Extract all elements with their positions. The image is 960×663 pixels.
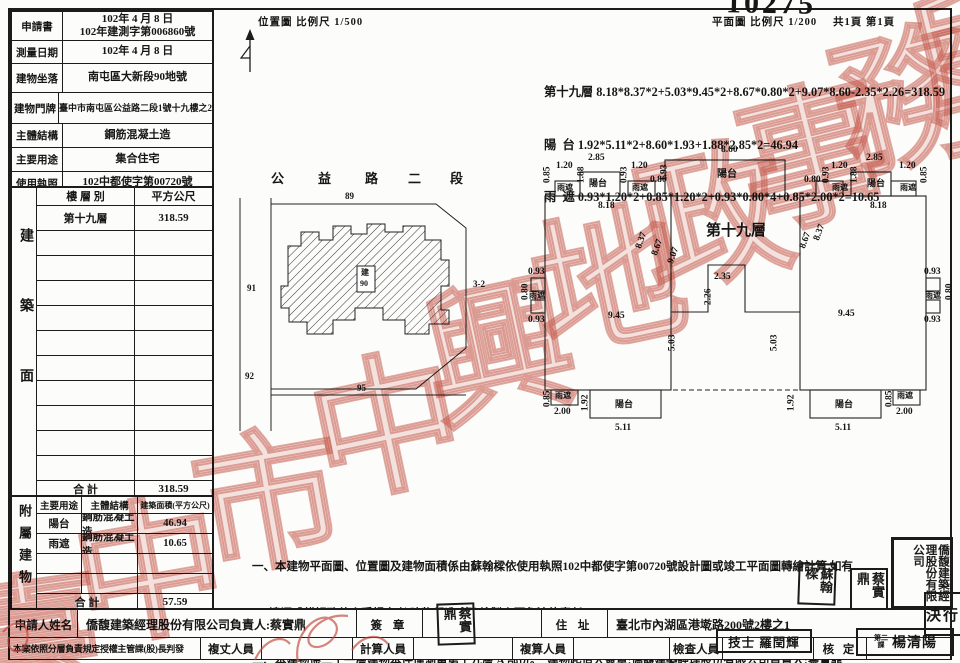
north-arrow-icon (236, 26, 266, 74)
annex-table-side-label: 附屬建物 (12, 497, 37, 610)
dim-label: 2.85 (866, 154, 883, 164)
dim-label: 0.93 (621, 166, 631, 183)
dim-label: 2.00 (896, 408, 913, 418)
dim-label: 第十九層 (706, 224, 766, 239)
table-cell (135, 231, 212, 255)
dim-label: 9.45 (838, 310, 855, 320)
dim-label: 0.85 (544, 390, 554, 407)
dim-label: 8.18 (598, 202, 615, 212)
recalc-staff-area (574, 638, 670, 659)
annex-table-header: 主要用途 主體結構 建築面積(平方公尺) (37, 497, 212, 514)
dim-label: 陽台 (615, 400, 633, 409)
dim-label: 9.07 (667, 246, 682, 265)
building-info-table: 申請書 102年 4 月 8 日 102年建測字第006860號 測量日期 10… (10, 10, 214, 195)
dim-label: 雨遮 (555, 392, 571, 400)
col-floor: 樓 層 別 (37, 188, 135, 205)
table-row: 第十九層318.59 (37, 206, 212, 231)
table-cell (37, 431, 135, 455)
row-value: 102年 4 月 8 日 102年建測字第006860號 (63, 12, 212, 40)
dim-label: 2.35 (714, 273, 731, 283)
applicant-label: 申請人姓名 (10, 610, 78, 639)
page-count: 共1頁 第1頁 (833, 14, 895, 29)
col-area: 建築面積(平方公尺) (138, 497, 212, 513)
table-row (37, 381, 212, 406)
location-map-header: 位置圖 比例尺 1/500 (258, 14, 363, 29)
table-cell (135, 456, 212, 480)
dim-label: 92 (245, 372, 254, 381)
dim-label: 陽台 (835, 400, 853, 409)
dim-label: 段 (450, 172, 463, 185)
drafter-seal-stamp: 蘇翰樑 (797, 562, 836, 605)
table-cell (37, 356, 135, 380)
row-label: 建物坐落 (12, 64, 63, 92)
recalc-staff-label: 複算人員 (513, 638, 574, 659)
dim-label: 雨遮 (900, 184, 916, 192)
dim-label: 0.93 (924, 316, 941, 326)
table-row (37, 431, 212, 456)
building-survey-result-form: 10275 位置圖 比例尺 1/500 平面圖 比例尺 1/200 共1頁 第1… (0, 0, 960, 663)
location-map: 公益路二段899192953-2建90 (233, 168, 525, 434)
authorization-text: 本案依照分層負責規定授權主管課(股)長判發 (10, 638, 201, 659)
table-cell (135, 306, 212, 330)
table-row (37, 306, 212, 331)
area-table-rows: 第十九層318.59 (37, 206, 212, 481)
examiner-stamp: 技士 羅閏輝 (716, 629, 812, 653)
dim-label: 雨遮 (925, 292, 941, 300)
dim-label: 公 (271, 172, 284, 185)
dim-label: 雨遮 (557, 184, 573, 192)
section-chief-stamp: 第二課 楊清陽 (856, 628, 954, 656)
table-cell (138, 574, 212, 593)
dim-label: 陽台 (717, 170, 737, 180)
building-area-table: 建築面積 樓 層 別 平方公尺 第十九層318.59 合 計 318.59 (10, 186, 214, 499)
calc-staff-label: 計算人員 (353, 638, 414, 659)
table-row: 測量日期 102年 4 月 8 日 (12, 41, 212, 64)
dim-label: 8.67 (799, 231, 814, 250)
table-cell: 雨遮 (37, 534, 82, 553)
dim-label: 91 (247, 284, 256, 293)
table-row: 主體結構 鋼筋混凝土造 (12, 124, 212, 148)
table-row (37, 331, 212, 356)
table-cell (37, 554, 82, 573)
table-cell: 鋼筋混凝土造 (82, 514, 138, 533)
table-row: 建物門牌 臺中市南屯區公益路二段1號十九樓之2 (12, 93, 212, 124)
table-cell (135, 381, 212, 405)
dim-label: 陽台 (589, 179, 607, 188)
table-cell: 10.65 (138, 534, 212, 553)
dim-label: 1.93 (661, 164, 671, 181)
row-label: 主體結構 (12, 124, 63, 147)
table-row: 建物坐落 南屯區大新段90地號 (12, 64, 212, 93)
col-use: 主要用途 (37, 497, 82, 513)
dim-label: 89 (345, 192, 354, 201)
table-cell: 鋼筋混凝土造 (82, 534, 138, 553)
dim-label: 2.85 (588, 154, 605, 164)
dim-label: 90 (360, 280, 368, 288)
table-cell (135, 256, 212, 280)
dim-label: 1.20 (631, 162, 648, 172)
dim-label: 5.03 (771, 334, 781, 351)
applicant-name: 僑馥建築經理股份有限公司負責人:蔡實鼎 (78, 610, 357, 639)
dim-label: 2.00 (554, 408, 571, 418)
table-cell (82, 574, 138, 593)
dim-label: 雨遮 (897, 392, 913, 400)
signature-label: 簽 章 (357, 610, 423, 639)
table-cell (135, 356, 212, 380)
dim-label: 5.11 (835, 424, 851, 434)
note-line: 一、本建物平面圖、位置圖及建物面積係由蘇翰樑依使用執照102中都使字第00720… (252, 560, 952, 576)
dim-label: 路 (365, 172, 378, 185)
table-row: 雨遮鋼筋混凝土造10.65 (37, 534, 212, 554)
annex-table-rows: 陽台鋼筋混凝土造46.94雨遮鋼筋混凝土造10.65 (37, 514, 212, 594)
dim-label: 0.85 (544, 166, 554, 183)
table-cell (37, 256, 135, 280)
row-label: 測量日期 (12, 41, 63, 63)
table-cell: 46.94 (138, 514, 212, 533)
dim-label: 1.20 (556, 162, 573, 172)
table-cell (135, 406, 212, 430)
formula-floor19: 第十九層 8.18*8.37*2+5.03*9.45*2+8.67*0.80*2… (544, 84, 945, 102)
location-map-labels: 公益路二段899192953-2建90 (233, 168, 525, 434)
applicant-seal-stamp: 蔡實鼎 (436, 602, 475, 645)
dim-label: 8.18 (870, 202, 887, 212)
owner-seal-stamp: 蔡實鼎 (850, 568, 888, 610)
table-cell (37, 281, 135, 305)
dim-label: 雨遮 (529, 292, 545, 300)
dim-label: 雨遮 (632, 184, 648, 192)
dim-label: 二 (408, 172, 421, 185)
table-cell: 318.59 (135, 206, 212, 230)
area-table-side-label: 建築面積 (12, 188, 37, 497)
table-cell (135, 331, 212, 355)
dim-label: 1.20 (831, 162, 848, 172)
dim-label: 陽台 (867, 179, 885, 188)
dim-label: 0.85 (921, 166, 931, 183)
dim-label: 0.93 (528, 316, 545, 326)
table-cell (135, 431, 212, 455)
col-sqm: 平方公尺 (135, 188, 212, 205)
dim-label: 1.20 (899, 162, 916, 172)
table-cell: 第十九層 (37, 206, 135, 230)
dim-label: 95 (357, 384, 366, 393)
table-row: 主要用途 集合住宅 (12, 148, 212, 172)
dim-label: 2.26 (705, 288, 715, 305)
dim-label: 益 (318, 172, 331, 185)
section-unit: 第二課 (873, 635, 889, 649)
dim-label: 8.60 (721, 146, 738, 156)
table-cell (37, 306, 135, 330)
col-structure: 主體結構 (82, 497, 138, 513)
row-label: 申請書 (12, 12, 63, 40)
dim-label: 5.11 (615, 424, 631, 434)
table-cell: 陽台 (37, 514, 82, 533)
table-cell (37, 381, 135, 405)
annex-building-table: 附屬建物 主要用途 主體結構 建築面積(平方公尺) 陽台鋼筋混凝土造46.94雨… (10, 495, 214, 612)
table-row (37, 356, 212, 381)
dim-label: 1.92 (788, 394, 798, 411)
table-cell (138, 554, 212, 573)
table-row: 陽台鋼筋混凝土造46.94 (37, 514, 212, 534)
table-row: 申請書 102年 4 月 8 日 102年建測字第006860號 (12, 12, 212, 41)
dim-label: 1.92 (582, 394, 592, 411)
location-map-scale: 1/500 (334, 17, 363, 28)
dim-label: 8.37 (635, 231, 650, 250)
table-row (37, 406, 212, 431)
dim-label: 3-2 (473, 280, 485, 289)
table-row (37, 456, 212, 481)
area-table-header: 樓 層 別 平方公尺 (37, 188, 212, 206)
location-map-label: 位置圖 比例尺 (258, 17, 331, 28)
dim-label: 雨遮 (832, 184, 848, 192)
floor-plan-labels: 0.851.20雨遮1.882.85陽台0.931.20雨遮0.808.181.… (518, 140, 954, 445)
plan-map-label: 平面圖 比例尺 (712, 17, 785, 28)
plan-map-header: 平面圖 比例尺 1/200 (712, 14, 817, 29)
dim-label: 0.93 (528, 268, 545, 278)
table-row (37, 231, 212, 256)
dim-label: 建 (361, 269, 369, 277)
floor-plan: 0.851.20雨遮1.882.85陽台0.931.20雨遮0.808.181.… (518, 140, 954, 445)
table-cell (37, 331, 135, 355)
table-cell (82, 554, 138, 573)
dim-label: 0.93 (924, 268, 941, 278)
dim-label: 0.85 (886, 390, 896, 407)
address-label: 住 址 (542, 610, 608, 639)
table-cell (37, 574, 82, 593)
dim-label: 8.37 (813, 223, 828, 242)
dim-label: 8.67 (651, 238, 666, 257)
dim-label: 1.88 (578, 166, 588, 183)
resurvey-staff-area (262, 638, 353, 659)
table-cell (37, 231, 135, 255)
table-cell (135, 281, 212, 305)
table-row (37, 256, 212, 281)
table-cell (37, 406, 135, 430)
table-row (37, 281, 212, 306)
table-cell (37, 456, 135, 480)
dim-label: 0.80 (946, 283, 956, 300)
row-label: 主要用途 (12, 148, 63, 171)
dim-label: 0.80 (804, 176, 821, 186)
section-chief-name: 楊清陽 (892, 632, 937, 652)
resurvey-staff-label: 複丈人員 (201, 638, 262, 659)
table-row (37, 554, 212, 574)
plan-map-scale: 1/200 (788, 17, 817, 28)
dim-label: 1.88 (851, 166, 861, 183)
dim-label: 5.03 (669, 334, 679, 351)
row-label: 建物門牌 (12, 93, 59, 123)
dim-label: 9.45 (608, 312, 625, 322)
table-row (37, 574, 212, 594)
